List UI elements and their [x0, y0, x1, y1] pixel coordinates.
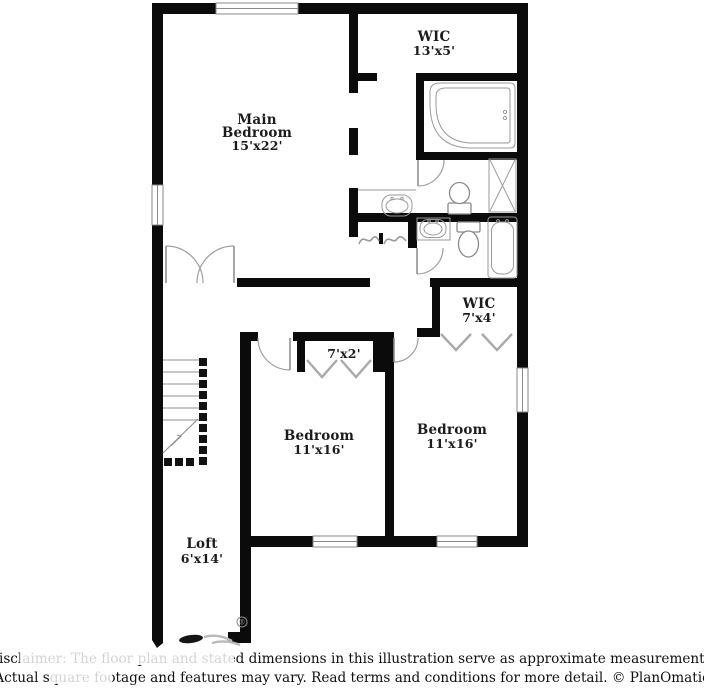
fixtures: [358, 83, 517, 278]
wall-top: [152, 3, 528, 14]
wic-small-bifold-doors: [441, 334, 512, 350]
logo-stroke-1: [204, 636, 232, 641]
wall-tub-platform-left: [416, 81, 424, 153]
hall-bathroom-door: [417, 248, 443, 274]
room-labels: Main Bedroom 15'x22' WIC 13'x5' WIC 7'x4…: [181, 29, 496, 566]
wall-leftbed-top: [240, 332, 258, 341]
wall-mainbed-bottom-right: [430, 278, 528, 287]
shower: [489, 159, 516, 212]
wall-right: [517, 3, 528, 547]
wall-mainbed-bath-lower: [349, 188, 358, 237]
interior-walls: [237, 13, 528, 547]
wall-bedroom-divider: [385, 332, 394, 547]
garden-tub: [430, 83, 515, 148]
window-bottom-right-bedroom: [437, 536, 477, 547]
disclaimer: Disclaimer: The floor plan and stated di…: [0, 648, 704, 686]
wall-mainbed-bottom-left: [237, 278, 370, 287]
wall-wic-bottom-left: [349, 73, 377, 81]
label-main-bedroom-dims: 15'x22': [231, 138, 282, 153]
registered-mark: ®: [239, 619, 246, 627]
label-closet-dims: 7'x2': [327, 346, 361, 361]
wall-hallbath-left: [408, 218, 417, 248]
label-wic-top-dims: 13'x5': [413, 43, 455, 58]
left-bedroom-door: [258, 338, 290, 370]
wall-linen-jamb: [379, 233, 383, 244]
wall-left: [152, 3, 163, 630]
window-right: [517, 368, 528, 412]
label-bedroom-right-dims: 11'x16': [426, 436, 477, 451]
window-left: [152, 185, 163, 225]
label-loft-dims: 6'x14': [181, 551, 223, 566]
label-wic-small-dims: 7'x4': [462, 310, 496, 325]
wall-wic-bottom-right: [416, 73, 528, 81]
wall-closet-left-jamb: [297, 341, 305, 372]
main-bedroom-double-door: [166, 246, 234, 283]
main-bath-vanity-sink: [358, 190, 416, 216]
wall-mainbed-bath-mid: [349, 128, 358, 155]
shower-compartment-door: [418, 160, 444, 186]
stairs-railing-dashes: [164, 358, 207, 466]
right-bedroom-door: [394, 338, 418, 362]
floorplan-canvas: Main Bedroom 15'x22' WIC 13'x5' WIC 7'x4…: [0, 0, 704, 691]
stairs: [163, 358, 207, 466]
wall-wic2-left: [432, 287, 440, 330]
wall-loft-right: [240, 332, 251, 643]
floorplan-drawing: Main Bedroom 15'x22' WIC 13'x5' WIC 7'x4…: [0, 0, 704, 691]
window-bottom-left-bedroom: [313, 536, 357, 547]
closet-bifold-doors: [307, 360, 371, 377]
main-bath-toilet: [448, 183, 471, 215]
watermark-overlay-box-1: [20, 648, 234, 665]
window-top: [216, 3, 298, 14]
wall-closet-top: [293, 332, 385, 341]
wall-bottom-bedrooms: [240, 536, 528, 547]
hall-bath-tub: [488, 217, 517, 278]
logo-blob: [179, 634, 204, 645]
watermark-overlay-box-2: [50, 668, 112, 684]
windows: [152, 3, 528, 547]
hall-bath-toilet: [457, 222, 480, 257]
label-loft: Loft: [186, 536, 218, 552]
wall-wic2-stub: [417, 328, 440, 337]
wall-left-angled-end: [152, 630, 163, 648]
label-bedroom-left-dims: 11'x16': [293, 442, 344, 457]
